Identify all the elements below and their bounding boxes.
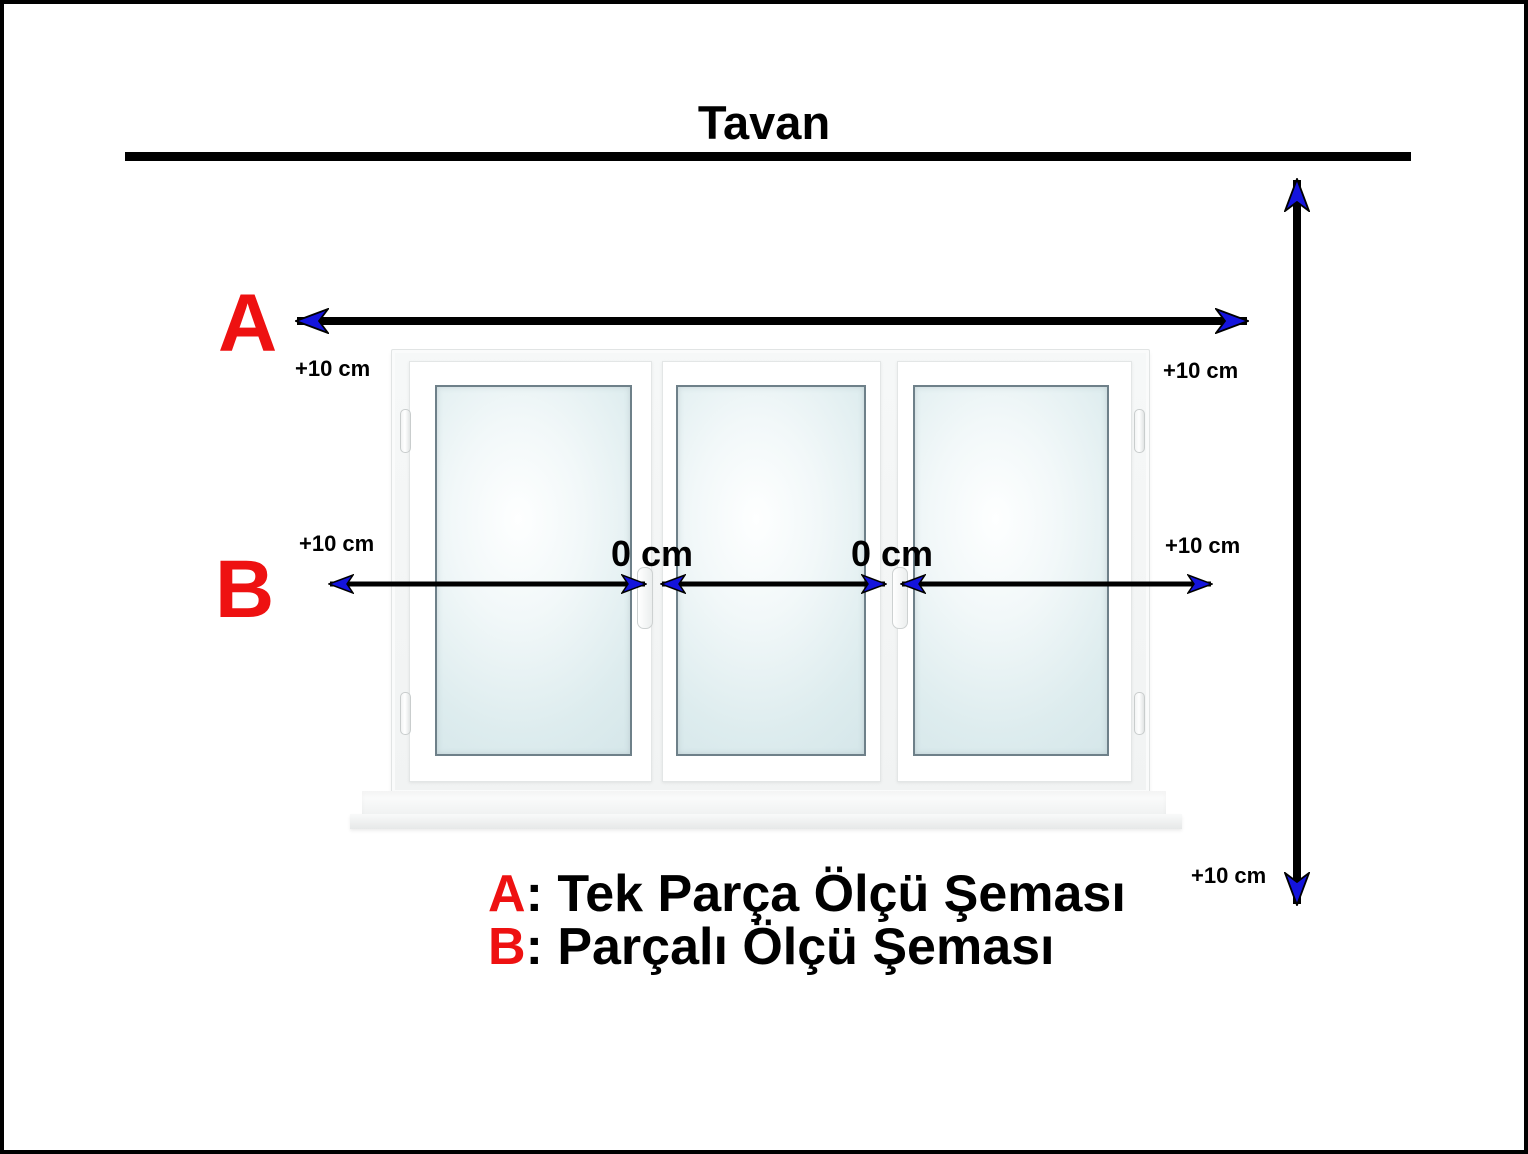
scheme-b-letter: B (215, 549, 274, 631)
legend-a-key: A (488, 865, 526, 923)
legend-line-a: A: Tek Parça Ölçü Şeması (488, 868, 1126, 920)
gap-measurement-label-1: 0 cm (582, 536, 722, 572)
measurement-diagram: Tavan A B +10 cm +10 cm +10 cm +10 cm (0, 0, 1528, 1154)
legend-line-b: B: Parçalı Ölçü Şeması (488, 921, 1055, 973)
measurement-label-top-right: +10 cm (1163, 360, 1238, 382)
measurement-label-bottom-right: +10 cm (1191, 865, 1266, 887)
legend-b-key: B (488, 918, 526, 976)
measurement-label-mid-left: +10 cm (299, 533, 374, 555)
scheme-a-letter: A (218, 283, 277, 365)
measurement-label-mid-right: +10 cm (1165, 535, 1240, 557)
measurement-label-top-left: +10 cm (295, 358, 370, 380)
legend-a-text: : Tek Parça Ölçü Şeması (526, 865, 1126, 923)
legend-b-text: : Parçalı Ölçü Şeması (526, 918, 1055, 976)
gap-measurement-label-2: 0 cm (822, 536, 962, 572)
